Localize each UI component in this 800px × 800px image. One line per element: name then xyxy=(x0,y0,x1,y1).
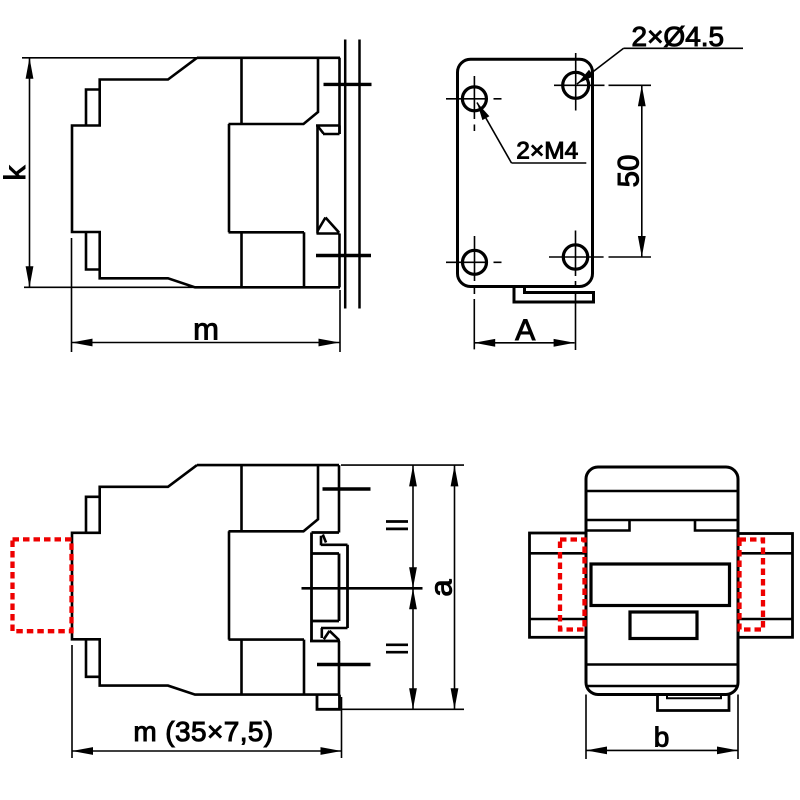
svg-text:m (35×7,5): m (35×7,5) xyxy=(133,716,273,747)
svg-text:k: k xyxy=(0,165,32,181)
svg-text:2×Ø4.5: 2×Ø4.5 xyxy=(632,21,725,52)
svg-text:50: 50 xyxy=(613,155,646,188)
svg-text:2×M4: 2×M4 xyxy=(516,138,578,165)
svg-text:m: m xyxy=(193,312,219,347)
svg-text:b: b xyxy=(654,722,670,753)
svg-text:A: A xyxy=(515,314,535,347)
svg-text:a: a xyxy=(424,579,459,597)
